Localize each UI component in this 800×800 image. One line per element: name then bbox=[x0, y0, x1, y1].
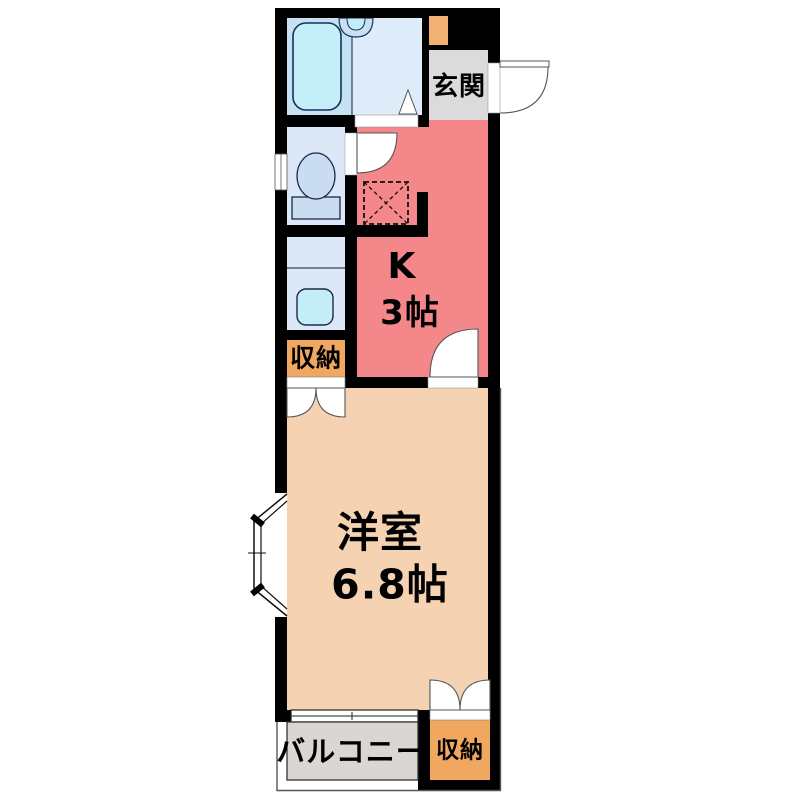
storage-upper-opening bbox=[287, 377, 345, 388]
vanity-basin bbox=[297, 289, 333, 325]
wall-right bbox=[488, 18, 500, 791]
wall-kitchen-room-right bbox=[478, 377, 488, 388]
entrance-label: 玄関 bbox=[432, 74, 486, 100]
bay-window-body bbox=[255, 493, 287, 617]
sliding-window bbox=[291, 710, 418, 722]
wall-bath-entrance bbox=[422, 18, 429, 127]
kitchen-size-label: 3帖 bbox=[380, 296, 440, 330]
entrance-door-leaf bbox=[500, 61, 549, 67]
wall-niche-stub bbox=[417, 192, 428, 237]
storage-lower-label: 収納 bbox=[436, 740, 484, 763]
balcony-label: バルコニー bbox=[276, 738, 425, 767]
shoe-cabinet bbox=[429, 16, 448, 45]
wall-bottom-right bbox=[418, 780, 500, 791]
bay-window bbox=[248, 493, 287, 617]
kitchen-room-door-opening bbox=[428, 377, 478, 388]
storage-upper-label: 収納 bbox=[290, 346, 342, 371]
floorplan-drawing bbox=[0, 0, 800, 800]
toilet-door-opening bbox=[345, 133, 357, 175]
wall-left-lower bbox=[275, 617, 287, 722]
wall-left-upper bbox=[275, 18, 287, 493]
toilet-tank bbox=[292, 197, 340, 219]
entrance-door-swing bbox=[500, 67, 548, 113]
wall-washroom-bottom bbox=[287, 330, 345, 340]
western-room-label: 洋室 bbox=[337, 512, 423, 554]
toilet bbox=[297, 153, 335, 199]
bathtub bbox=[293, 23, 341, 110]
floorplan-canvas: 玄関 K 3帖 収納 洋室 6.8帖 バルコニー 収納 bbox=[0, 0, 800, 800]
bath-washbasin-bowl bbox=[347, 18, 365, 30]
storage-lower-opening bbox=[430, 710, 490, 720]
wall-kitchen-room bbox=[345, 377, 428, 388]
wall-kitchen-niche bbox=[287, 225, 428, 237]
bathroom-door-opening bbox=[355, 115, 418, 127]
western-room-size-label: 6.8帖 bbox=[331, 565, 449, 606]
entrance-door-opening bbox=[488, 63, 500, 113]
kitchen-label: K bbox=[388, 249, 417, 285]
wall-bottom-left bbox=[275, 710, 291, 722]
